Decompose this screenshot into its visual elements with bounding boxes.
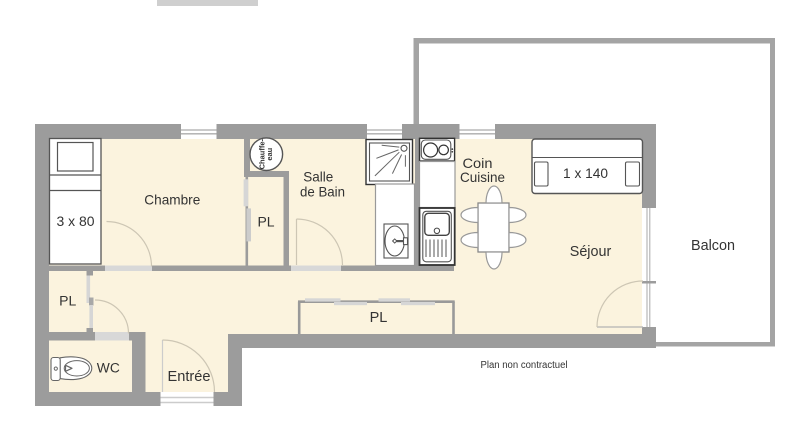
svg-text:1 x 140: 1 x 140 [563, 165, 608, 181]
svg-text:de Bain: de Bain [300, 184, 345, 200]
svg-text:Plan non contractuel: Plan non contractuel [481, 360, 568, 371]
svg-text:Séjour: Séjour [570, 243, 612, 260]
svg-text:WC: WC [97, 361, 120, 376]
svg-text:Chambre: Chambre [144, 192, 200, 208]
svg-text:PL: PL [59, 293, 76, 309]
svg-text:Salle: Salle [303, 169, 333, 185]
svg-text:PL: PL [370, 310, 388, 326]
svg-text:PL: PL [257, 214, 274, 230]
svg-text:3 x 80: 3 x 80 [57, 213, 95, 229]
svg-text:Cuisine: Cuisine [460, 169, 505, 185]
svg-text:Entrée: Entrée [168, 368, 211, 385]
svg-text:Balcon: Balcon [691, 237, 735, 254]
